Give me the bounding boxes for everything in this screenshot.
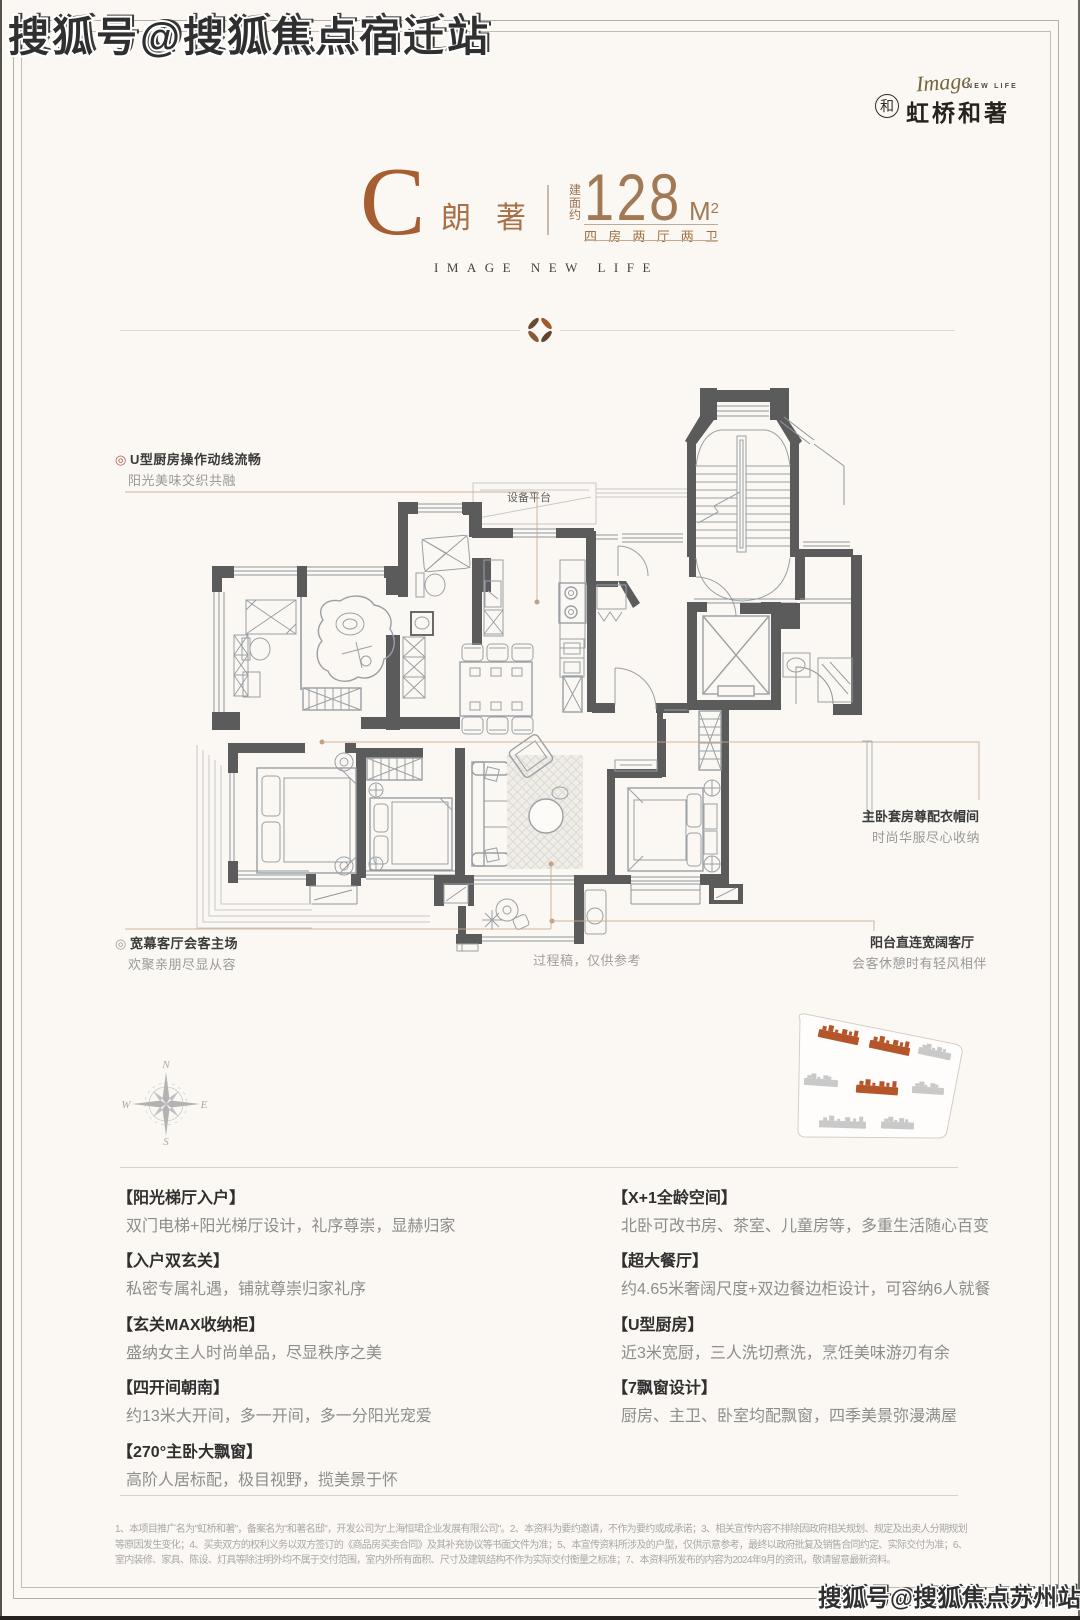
svg-text:E: E xyxy=(200,1099,208,1111)
svg-text:S: S xyxy=(163,1136,169,1148)
svg-text:搜狐号@搜狐焦点苏州站: 搜狐号@搜狐焦点苏州站 xyxy=(818,1584,1080,1611)
svg-text:W: W xyxy=(121,1099,131,1111)
svg-text:N: N xyxy=(161,1059,170,1071)
svg-text:搜狐号@搜狐焦点宿迁站: 搜狐号@搜狐焦点宿迁站 xyxy=(8,14,491,60)
